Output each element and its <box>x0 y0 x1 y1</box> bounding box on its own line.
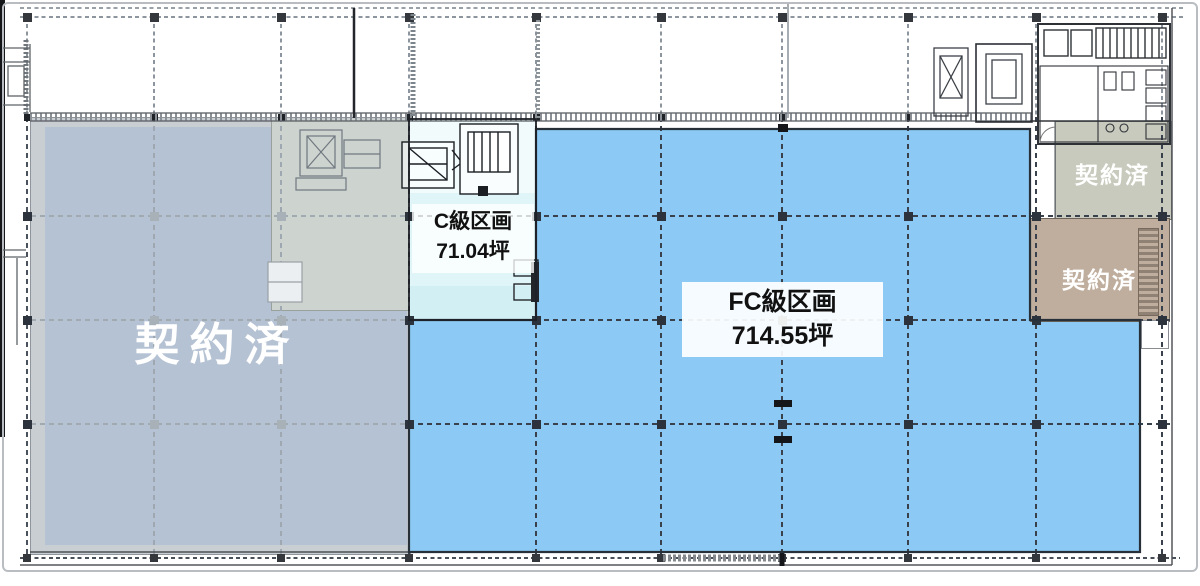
column-marker <box>657 212 666 221</box>
column-marker <box>278 114 285 121</box>
column-marker <box>151 114 158 121</box>
grid-line-vertical <box>660 17 662 117</box>
grid-line-vertical <box>535 17 537 117</box>
column-marker <box>779 114 786 121</box>
column-marker <box>904 316 913 325</box>
grid-line-vertical <box>408 17 410 117</box>
column-marker <box>1158 554 1166 562</box>
grid-line-horizontal <box>20 16 1183 18</box>
column-marker <box>1158 212 1167 221</box>
column-marker <box>23 212 32 221</box>
grid-line-vertical <box>1035 117 1037 558</box>
column-marker <box>532 420 541 429</box>
column-marker <box>904 212 913 221</box>
column-marker <box>1158 13 1167 22</box>
column-marker <box>1032 554 1040 562</box>
column-marker <box>657 316 666 325</box>
column-marker <box>406 114 413 121</box>
grid-line-vertical <box>660 117 662 558</box>
fc-section-area: 714.55坪 <box>682 320 883 354</box>
column-marker <box>23 316 32 325</box>
grid-line-horizontal <box>31 423 409 425</box>
column-marker <box>150 554 158 562</box>
column-marker <box>658 114 665 121</box>
grid-line-horizontal <box>409 423 1172 425</box>
column-marker <box>778 420 787 429</box>
grid-line-vertical <box>535 117 537 558</box>
grid-line-horizontal <box>31 215 409 217</box>
column-marker <box>1158 420 1167 429</box>
grid-line-vertical <box>153 17 155 117</box>
column-marker <box>778 212 787 221</box>
grid-line-vertical <box>26 117 28 558</box>
grid-line-vertical <box>907 117 909 558</box>
column-marker <box>657 13 666 22</box>
column-marker <box>405 316 414 325</box>
column-marker <box>277 212 286 221</box>
column-marker <box>904 554 912 562</box>
column-marker <box>1032 420 1041 429</box>
column-marker <box>532 554 540 562</box>
column-marker <box>277 554 285 562</box>
column-marker <box>277 13 286 22</box>
floor-plan: 契約済 C級区画 71.04坪 FC級区画 714.55坪 契約済 契約済 <box>0 0 1200 586</box>
column-marker <box>405 554 413 562</box>
leased-left-label: 契約済 <box>88 308 346 373</box>
fc-section-label: FC級区画 714.55坪 <box>682 282 883 357</box>
column-marker <box>904 13 913 22</box>
column-marker <box>1032 316 1041 325</box>
c-section-name: C級区画 <box>412 207 534 237</box>
grid-line-vertical <box>907 17 909 117</box>
column-marker <box>1158 316 1167 325</box>
c-section-label: C級区画 71.04坪 <box>412 204 534 273</box>
structural-grid <box>0 0 1200 586</box>
grid-line-vertical <box>1035 17 1037 117</box>
column-marker <box>1032 212 1041 221</box>
column-marker <box>150 13 159 22</box>
column-marker <box>405 420 414 429</box>
column-marker <box>24 114 31 121</box>
column-marker <box>277 420 286 429</box>
column-marker <box>1032 13 1041 22</box>
grid-line-vertical <box>1161 17 1163 117</box>
column-marker <box>904 420 913 429</box>
column-marker <box>532 13 541 22</box>
grid-line-vertical <box>408 117 410 558</box>
leased-lower-right-label: 契約済 <box>1031 261 1168 295</box>
column-marker <box>23 13 32 22</box>
grid-line-vertical <box>26 17 28 117</box>
grid-line-horizontal <box>20 7 1183 9</box>
column-marker <box>657 420 666 429</box>
column-marker <box>150 420 159 429</box>
grid-line-vertical <box>781 17 783 117</box>
column-marker <box>533 114 540 121</box>
column-marker <box>905 114 912 121</box>
column-marker <box>405 13 414 22</box>
column-marker <box>532 316 541 325</box>
column-marker <box>778 13 787 22</box>
c-section-area: 71.04坪 <box>412 237 534 267</box>
leased-upper-right-label: 契約済 <box>1055 156 1170 190</box>
column-marker <box>23 420 32 429</box>
grid-line-vertical <box>280 17 282 117</box>
grid-line-horizontal <box>20 557 1180 559</box>
column-marker <box>657 554 665 562</box>
column-marker <box>778 554 786 562</box>
column-marker <box>150 212 159 221</box>
fc-section-name: FC級区画 <box>682 286 883 320</box>
column-marker <box>23 554 31 562</box>
